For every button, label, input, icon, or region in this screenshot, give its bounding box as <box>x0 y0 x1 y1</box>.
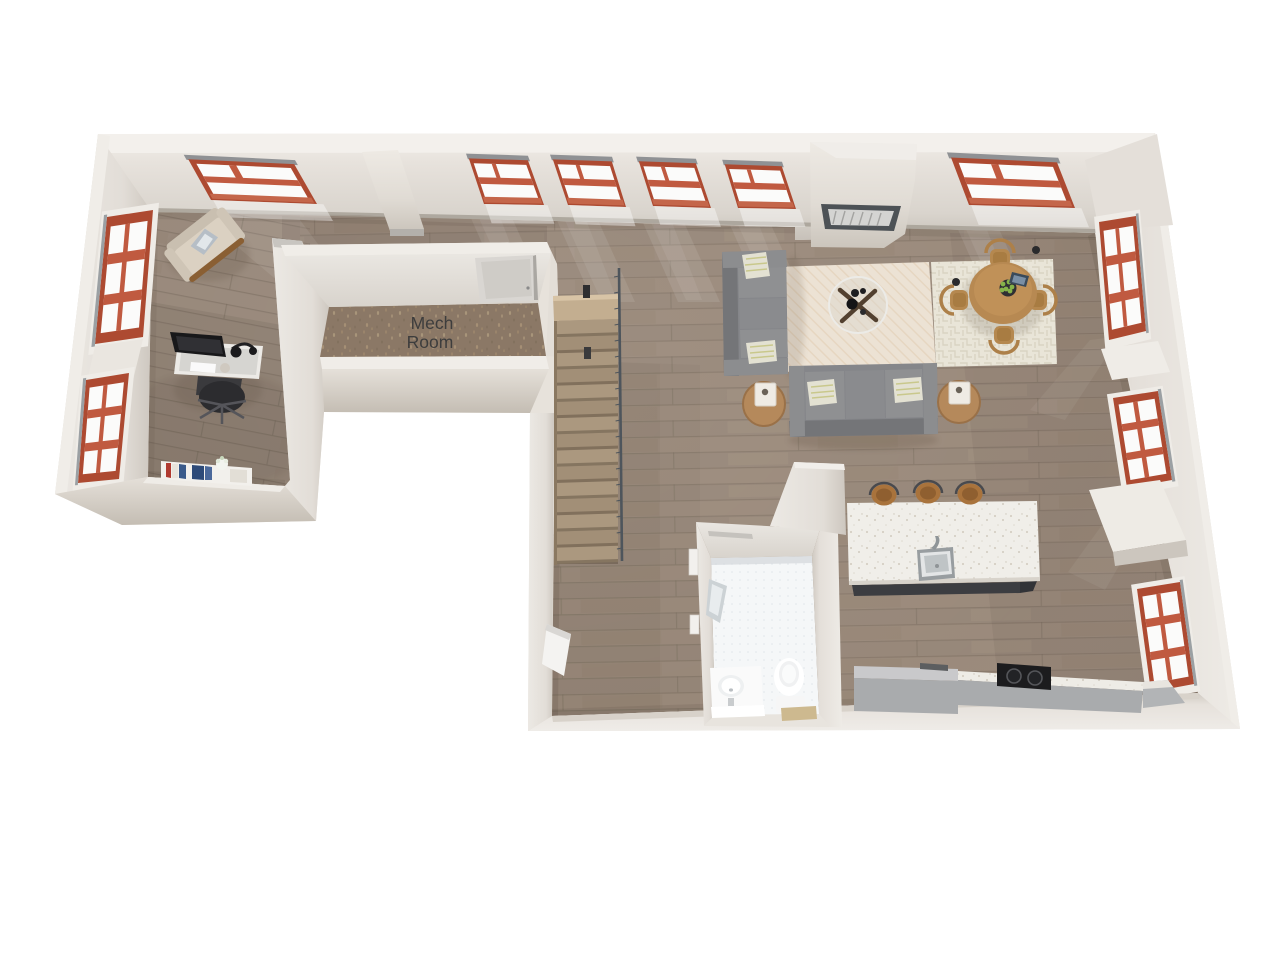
svg-text:Mech: Mech <box>411 313 454 333</box>
svg-text:Room: Room <box>407 332 454 352</box>
